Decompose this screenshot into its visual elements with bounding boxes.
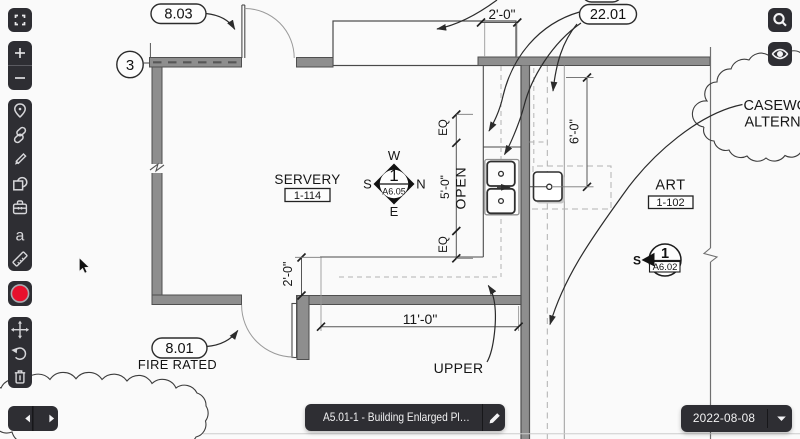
svg-text:A6.02: A6.02: [653, 262, 678, 273]
svg-text:SERVERY: SERVERY: [274, 172, 340, 187]
svg-text:EQ: EQ: [438, 236, 450, 253]
svg-text:8.01: 8.01: [165, 341, 193, 357]
svg-text:N: N: [416, 177, 425, 192]
svg-text:W: W: [388, 148, 401, 163]
svg-text:2'-0": 2'-0": [489, 7, 516, 22]
svg-text:11'-0": 11'-0": [403, 311, 438, 327]
svg-text:OPEN: OPEN: [453, 167, 469, 210]
svg-text:3: 3: [126, 57, 134, 74]
svg-text:S: S: [633, 254, 641, 268]
svg-text:6'-0": 6'-0": [568, 119, 582, 144]
svg-text:1: 1: [661, 246, 669, 262]
svg-text:ALTERNATE: ALTERNATE: [745, 115, 800, 131]
svg-text:A6.05: A6.05: [382, 186, 406, 196]
svg-text:a: a: [16, 228, 25, 245]
svg-text:2'-0": 2'-0": [281, 262, 295, 287]
svg-text:UPPER: UPPER: [434, 360, 484, 376]
svg-text:CASEWORK: CASEWORK: [744, 98, 800, 114]
svg-text:8.03: 8.03: [164, 7, 192, 23]
svg-text:1: 1: [389, 166, 398, 185]
svg-text:EQ: EQ: [438, 119, 450, 136]
svg-text:22.01: 22.01: [590, 7, 626, 23]
svg-text:E: E: [390, 204, 399, 219]
svg-text:S: S: [363, 177, 372, 192]
svg-text:5'-0": 5'-0": [438, 175, 452, 199]
svg-text:1-102: 1-102: [656, 197, 684, 209]
svg-text:ART: ART: [655, 178, 685, 194]
svg-text:1-114: 1-114: [294, 190, 321, 202]
svg-text:FIRE RATED: FIRE RATED: [138, 357, 217, 372]
